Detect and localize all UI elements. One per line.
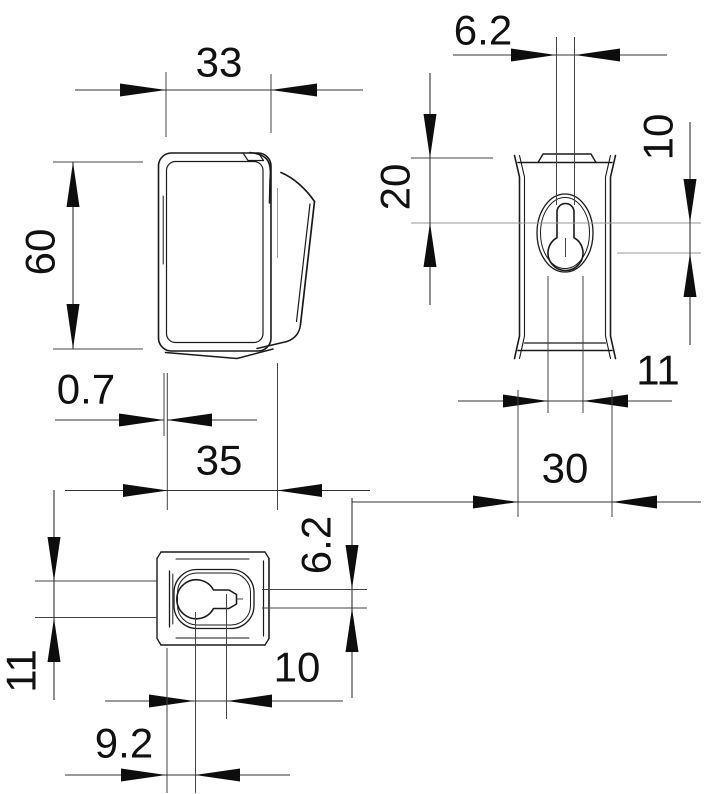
dim-20-label: 20 [372,164,419,211]
dim-10-top-extension-lines [196,594,227,793]
dim-11-top-extension-lines [35,581,157,618]
dim-60-arrow-bottom [67,304,80,349]
dim-10-front-label: 10 [635,114,682,161]
dim-10-top-arrow-right [227,695,272,708]
dim-6-2-front-label: 6.2 [454,7,512,54]
front-keyhole [548,204,583,271]
dim-0-7-arrow-right [167,414,212,427]
dim-6-2-top-extension-lines [262,590,367,609]
dim-33-label: 33 [196,39,243,86]
dim-35-arrow-left [123,484,168,497]
dim-10-top-arrow-left [149,695,194,708]
side-flap-top [281,173,315,202]
dim-33-arrow-left [120,84,166,97]
technical-drawing-page: 33 60 0.7 35 [0,0,706,794]
dim-20-arrow-bottom [424,223,437,267]
dim-10-top-label: 10 [274,644,321,691]
dim-10-front-arrow-bottom [684,253,697,297]
dim-30-arrow-right [612,496,657,509]
top-view: 11 6.2 10 9.2 [0,490,367,793]
dim-6-2-front-extension-lines [557,37,575,205]
dim-11-top-arrow-top [48,537,61,581]
dim-11-top-label: 11 [0,649,45,693]
side-body-outer [159,153,272,351]
dim-35-arrow-right [277,484,322,497]
dim-11-top-arrow-bottom [48,618,61,662]
dim-60-label: 60 [17,229,64,276]
dim-30-label: 30 [542,445,589,492]
front-emboss-outer [537,194,593,272]
dim-6-2-top-arrow-top [346,545,359,589]
dim-0-7-arrow-left [119,414,164,427]
dim-6-2-front-arrow-right [575,49,620,62]
side-view: 33 60 0.7 35 [17,39,371,511]
front-right-wall-outer [611,156,616,359]
dim-11-front-arrow-right [583,395,628,408]
dim-6-2-top-label: 6.2 [293,516,340,574]
dim-11-front-arrow-left [503,395,548,408]
drawing-canvas: 33 60 0.7 35 [0,0,706,794]
top-keyhole [177,580,237,619]
front-top-tab [538,154,596,163]
dim-0-7-extension-lines [164,373,167,510]
side-body-inner [167,162,264,343]
front-left-wall-outer [515,156,520,359]
dim-20-arrow-top [424,114,437,158]
dim-0-7-label: 0.7 [57,366,115,413]
top-top-chamfers [157,552,269,559]
front-view: 6.2 20 10 11 30 [352,7,701,518]
dim-6-2-front-arrow-left [511,49,556,62]
dim-60-extension-lines [53,162,143,349]
dim-30-arrow-left [473,496,518,509]
dim-9-2-arrow-left [121,769,166,782]
dim-35-label: 35 [196,437,243,484]
dim-60-arrow-top [67,162,80,207]
dim-9-2-arrow-right [195,769,240,782]
dim-9-2-label: 9.2 [95,720,153,767]
dim-10-front-arrow-top [684,179,697,223]
dim-11-front-label: 11 [636,347,680,394]
dim-11-front-extension-lines [548,276,583,413]
dim-33-arrow-right [271,84,317,97]
dim-6-2-top-arrow-bottom [346,608,359,652]
top-bottom-chamfers [157,639,269,646]
side-flap-edge-outer [301,202,315,325]
